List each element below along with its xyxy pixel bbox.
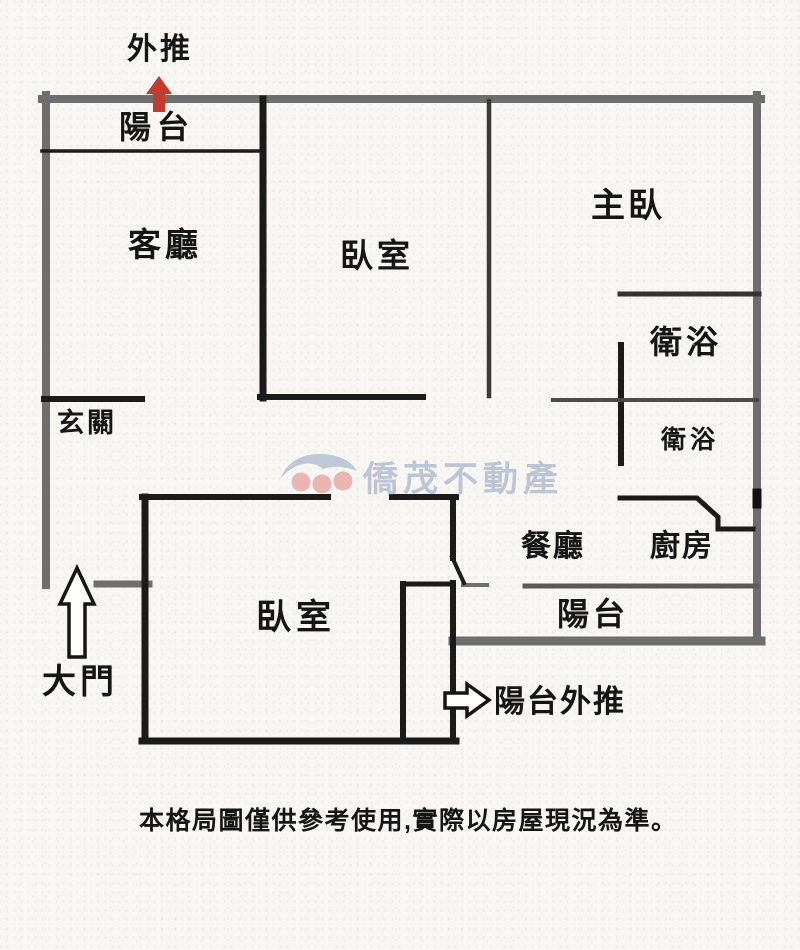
room-label-bedroom-upper: 臥室 xyxy=(340,239,414,272)
room-label-kitchen: 廚房 xyxy=(650,532,714,562)
push-out-arrow-icon xyxy=(146,76,172,112)
watermark-text: 僑茂不動產 xyxy=(362,459,563,499)
room-label-bathroom-main: 衛浴 xyxy=(650,326,722,358)
balcony-push-out-label: 陽台外推 xyxy=(494,686,626,717)
room-label-living-room: 客廳 xyxy=(128,228,202,261)
room-label-balcony-top: 陽台 xyxy=(119,111,195,143)
room-label-dining-room: 餐廳 xyxy=(521,532,585,562)
floorplan-canvas: 僑茂不動產 外推 陽台 客廳 臥室 主臥 衛浴 衛浴 玄關 餐廳 廚房 陽台 臥… xyxy=(0,0,800,950)
main-door-label: 大門 xyxy=(42,665,118,699)
main-door-arrow-icon xyxy=(60,568,94,657)
room-label-balcony-bottom: 陽台 xyxy=(557,598,629,630)
room-label-bathroom-second: 衛浴 xyxy=(661,428,719,453)
room-label-bedroom-lower: 臥室 xyxy=(256,600,336,635)
room-label-entryway: 玄關 xyxy=(57,410,117,437)
push-out-label: 外推 xyxy=(127,35,193,65)
room-label-master-bedroom: 主臥 xyxy=(591,189,665,223)
watermark-logo-icon xyxy=(281,454,357,494)
disclaimer-text: 本格局圖僅供參考使用,實際以房屋現況為準。 xyxy=(139,809,677,834)
